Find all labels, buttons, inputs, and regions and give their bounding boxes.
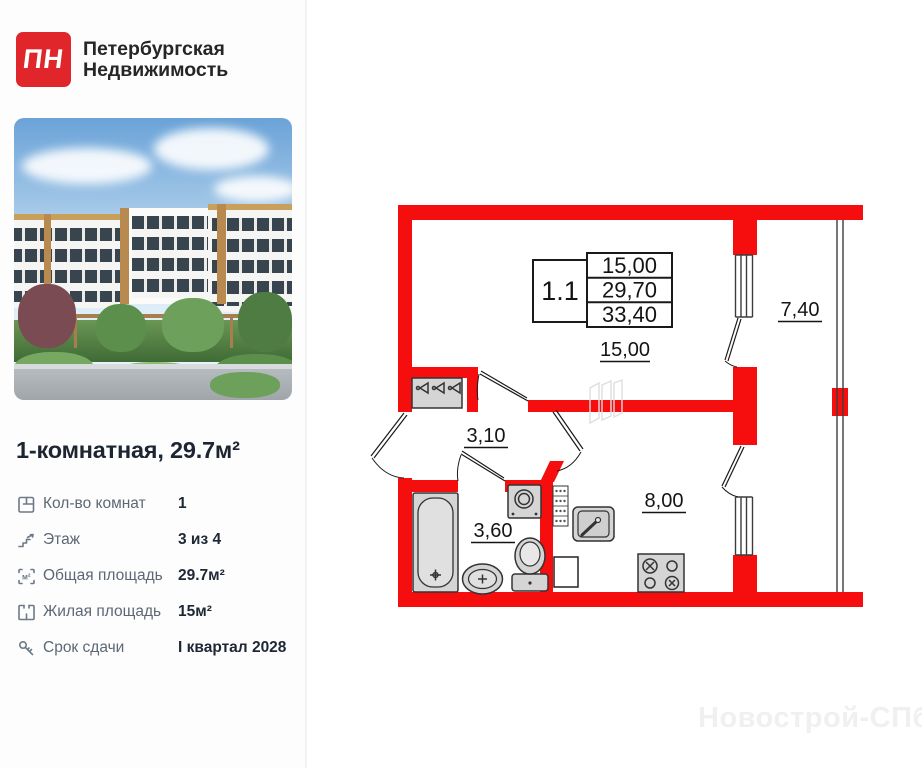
floor-icon <box>16 530 37 551</box>
detail-value: 3 из 4 <box>178 531 221 549</box>
detail-label: Общая площадь <box>43 567 178 585</box>
vent-shaft-grille <box>553 486 568 526</box>
balcony-window-bottom <box>736 497 753 555</box>
detail-value: 29.7м² <box>178 567 225 585</box>
kitchen-niche <box>554 557 578 587</box>
brand: ПН Петербургская Недвижимость <box>16 32 228 87</box>
entrance-door <box>371 413 407 478</box>
spec-row: 33,40 <box>602 302 657 327</box>
bathroom-door <box>457 451 505 481</box>
project-photo[interactable] <box>14 118 292 400</box>
brand-name-line1: Петербургская <box>83 39 228 60</box>
photo-cloud <box>154 128 269 170</box>
photo-tree <box>18 284 76 348</box>
photo-wood-pillar <box>120 208 129 304</box>
listing-title: 1-комнатная, 29.7м² <box>16 437 240 464</box>
total-area-icon: м² <box>16 566 37 587</box>
photo-pergola <box>230 314 233 348</box>
kitchen-sink <box>573 507 614 541</box>
kitchen-area: 8,00 <box>645 490 684 512</box>
spec-row: 15,00 <box>602 253 657 278</box>
living-room-door <box>477 371 528 401</box>
detail-row-total-area: м² Общая площадь 29.7м² <box>16 558 292 594</box>
spec-row: 29,70 <box>602 278 657 303</box>
photo-tree <box>96 304 146 352</box>
brand-logo-letters: ПН <box>21 44 66 75</box>
spec-table: 1.1 15,00 29,70 33,40 <box>533 253 672 327</box>
detail-label: Срок сдачи <box>43 639 178 657</box>
detail-row-living-area: Жилая площадь 15м² <box>16 594 292 630</box>
balcony-door-living <box>725 318 741 367</box>
brand-name-line2: Недвижимость <box>83 60 228 81</box>
wardrobe <box>412 378 462 408</box>
living-room-area: 15,00 <box>600 339 650 361</box>
photo-cloud <box>214 176 292 202</box>
washing-machine <box>508 485 541 518</box>
photo-tree <box>238 292 292 352</box>
detail-label: Жилая площадь <box>43 603 178 621</box>
sidebar: ПН Петербургская Недвижимость 1-комнатна… <box>0 0 305 768</box>
floor-plan[interactable]: 1.1 15,00 29,70 33,40 15,00 3,10 3,60 8,… <box>360 190 920 620</box>
panel-divider <box>305 0 307 768</box>
svg-text:м²: м² <box>22 572 31 581</box>
hallway-area: 3,10 <box>467 425 506 447</box>
watermark: Новострой-СПб <box>698 702 918 735</box>
detail-row-rooms: Кол-во комнат 1 <box>16 486 292 522</box>
stove <box>638 554 684 592</box>
brand-logo-icon: ПН <box>16 32 71 87</box>
balcony-window-top <box>736 255 753 317</box>
photo-building-block <box>128 208 220 304</box>
detail-label: Этаж <box>43 531 178 549</box>
balcony-door-kitchen <box>722 446 744 497</box>
photo-wood-pillar <box>217 204 226 304</box>
room-count-icon <box>16 494 37 515</box>
photo-bush <box>210 372 280 398</box>
detail-label: Кол-во комнат <box>43 495 178 513</box>
brand-name: Петербургская Недвижимость <box>83 39 228 81</box>
key-icon <box>16 638 37 659</box>
detail-row-floor: Этаж 3 из 4 <box>16 522 292 558</box>
photo-cloud <box>22 148 152 184</box>
bathroom-area: 3,60 <box>474 520 513 542</box>
balcony-area: 7,40 <box>781 299 820 321</box>
bathtub <box>413 493 458 592</box>
detail-value: I квартал 2028 <box>178 639 286 657</box>
unit-number: 1.1 <box>541 276 579 306</box>
photo-tree <box>162 298 224 352</box>
toilet <box>512 538 548 591</box>
detail-row-deadline: Срок сдачи I квартал 2028 <box>16 630 292 666</box>
detail-value: 1 <box>178 495 187 513</box>
bathroom-sink <box>463 564 503 594</box>
listing-details: Кол-во комнат 1 Этаж 3 из 4 м² <box>16 486 292 666</box>
detail-value: 15м² <box>178 603 212 621</box>
living-area-icon <box>16 602 37 623</box>
